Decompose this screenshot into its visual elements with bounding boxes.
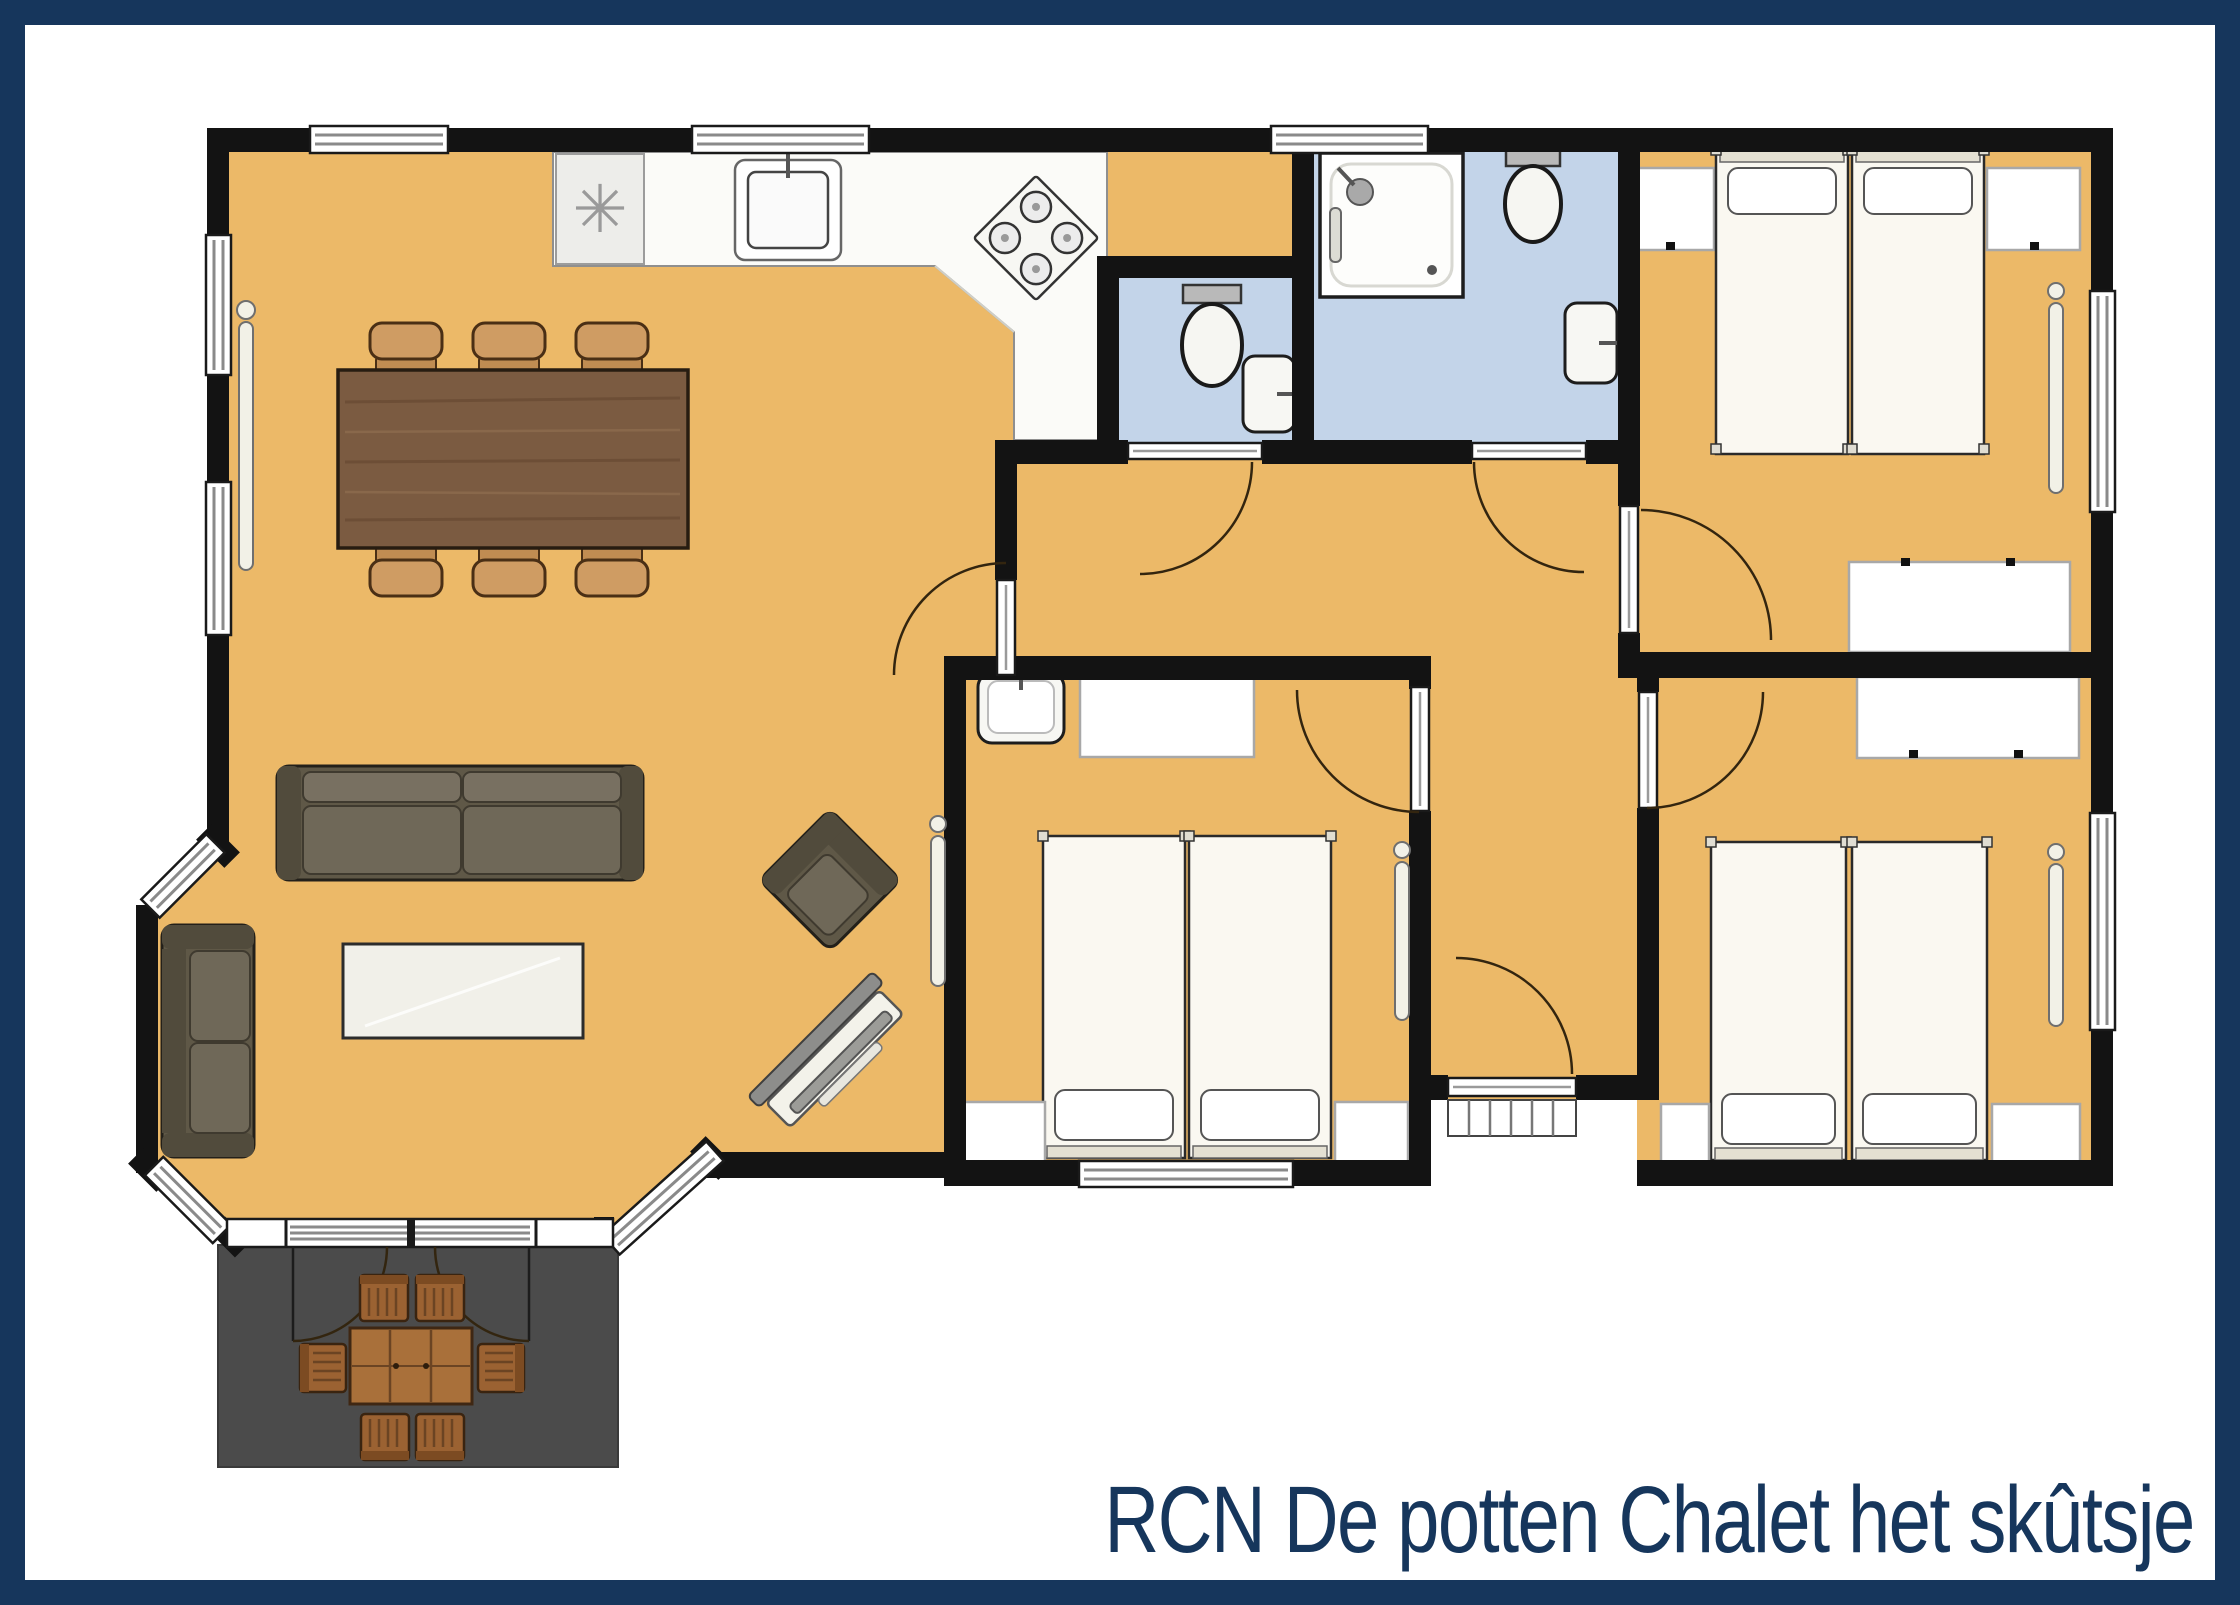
bedroom2-bed-right bbox=[1184, 831, 1336, 1158]
bedroom3-wardrobe bbox=[1857, 677, 2079, 758]
kitchen-sink bbox=[735, 146, 841, 260]
sofa-two-seat bbox=[162, 925, 254, 1157]
radiator-living-right bbox=[930, 816, 946, 986]
bedroom1-bed-left bbox=[1711, 145, 1853, 454]
outdoor-chair-left bbox=[300, 1344, 346, 1392]
dining-table bbox=[338, 370, 688, 548]
bedroom1-wardrobe bbox=[1849, 558, 2070, 652]
window-right-bedroom3 bbox=[2090, 813, 2115, 1030]
outdoor-chair-bottom-1 bbox=[361, 1414, 409, 1460]
radiator-bedroom2 bbox=[1394, 842, 1410, 1020]
shower-room-toilet bbox=[1505, 150, 1561, 242]
plan-title: RCN De potten Chalet het skûtsje bbox=[1105, 1466, 2194, 1575]
entrance-steps bbox=[1448, 1100, 1576, 1136]
outdoor-table bbox=[350, 1328, 472, 1404]
shower-tray bbox=[1320, 153, 1463, 297]
radiator-bedroom1 bbox=[2048, 283, 2064, 493]
window-right-bedroom1 bbox=[2090, 291, 2115, 512]
bedroom3-bed-left bbox=[1706, 837, 1851, 1160]
bedroom1-bed-right bbox=[1847, 145, 1989, 454]
sofa-three-seat bbox=[277, 766, 643, 880]
outdoor-chair-right bbox=[478, 1344, 524, 1392]
wc-sink bbox=[1243, 356, 1295, 432]
bedroom2-bed-left bbox=[1038, 831, 1190, 1158]
floorplan-page: ✳ bbox=[0, 0, 2240, 1605]
bedroom3-nightstand-left bbox=[1661, 1104, 1709, 1162]
dining-chairs-bottom bbox=[370, 546, 648, 596]
bedroom3-nightstand-right bbox=[1992, 1104, 2080, 1162]
outdoor-chair-top-1 bbox=[360, 1275, 408, 1321]
coffee-table bbox=[343, 944, 583, 1038]
window-top-3 bbox=[1271, 126, 1428, 153]
bedroom2-nightstand-right bbox=[1335, 1102, 1408, 1162]
radiator-bedroom3 bbox=[2048, 844, 2064, 1026]
window-bedroom2-south bbox=[1079, 1161, 1293, 1187]
bedroom2-dresser bbox=[1080, 667, 1254, 757]
radiator-living-left bbox=[237, 301, 255, 570]
bedroom2-nightstand-left bbox=[961, 1102, 1045, 1162]
shower-room-sink bbox=[1565, 303, 1617, 383]
wc-toilet bbox=[1182, 285, 1242, 386]
dining-chairs-top bbox=[370, 323, 648, 374]
bay-window-doors-south bbox=[227, 1219, 613, 1247]
window-top-2 bbox=[692, 126, 869, 153]
bedroom3-bed-right bbox=[1847, 837, 1992, 1160]
window-top-1 bbox=[310, 126, 448, 153]
window-left-1 bbox=[206, 235, 231, 375]
outdoor-chair-top-2 bbox=[416, 1275, 464, 1321]
freezer-icon: ✳ bbox=[572, 172, 627, 246]
floor-plan: ✳ bbox=[0, 0, 2240, 1605]
outdoor-chair-bottom-2 bbox=[416, 1414, 464, 1460]
freezer: ✳ bbox=[556, 154, 644, 264]
window-left-2 bbox=[206, 482, 231, 635]
bedroom1-nightstand-right bbox=[1987, 168, 2080, 250]
